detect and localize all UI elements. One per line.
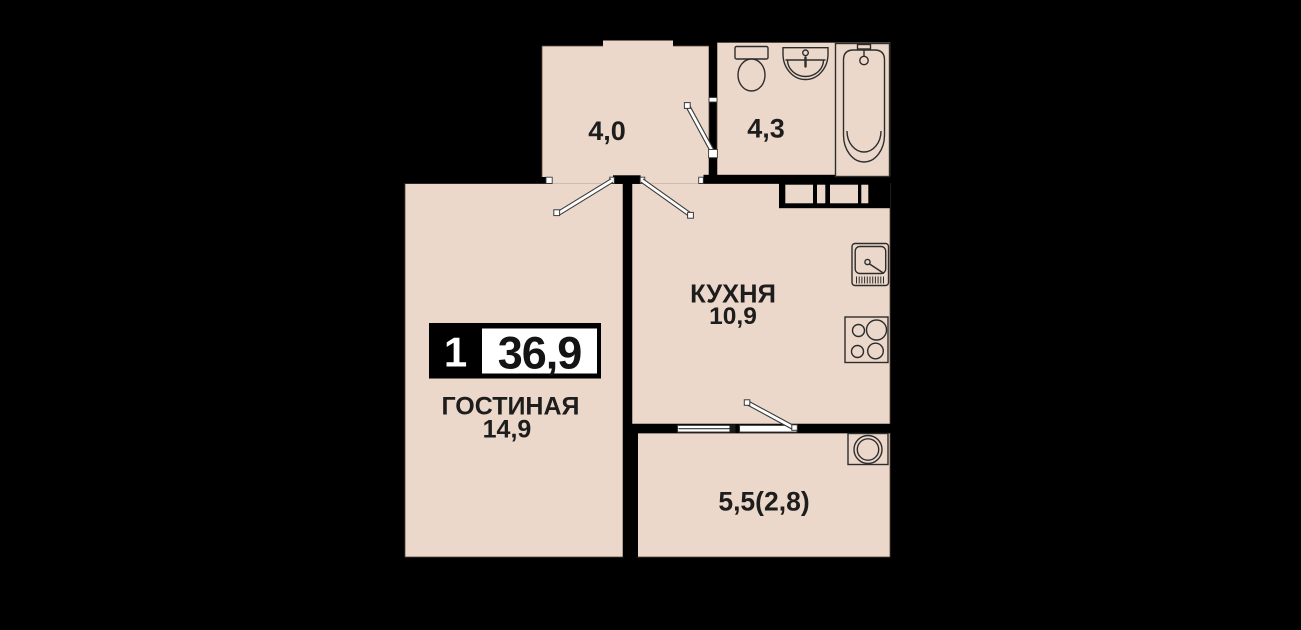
wall-bath-vertical-top — [709, 43, 717, 98]
door-tip-cap — [744, 400, 750, 406]
floorplan-svg: 1 36,9 4,0 4,3 КУХНЯ 10,9 ГОСТИНАЯ 14,9 … — [0, 0, 1301, 630]
door-hinge-cap — [792, 425, 798, 431]
jamb — [699, 177, 704, 183]
door-tip-cap — [688, 212, 694, 218]
window-mullion — [730, 424, 736, 433]
toilet-tank — [735, 47, 768, 60]
vent-duct-cell — [785, 185, 813, 204]
kitchen-sink-icon — [852, 244, 889, 286]
room-hallway-floor — [542, 46, 709, 178]
kitchen-area-label: 10,9 — [709, 303, 757, 330]
vent-duct-cell — [830, 185, 858, 204]
stove-icon — [845, 317, 888, 363]
jamb — [546, 177, 552, 183]
door-hinge-jamb — [709, 150, 718, 158]
jamb — [709, 98, 717, 103]
door-tip-cap — [684, 103, 690, 109]
opening-kitchen-door — [644, 177, 699, 184]
vent-duct-cell — [817, 185, 825, 204]
wall-living-balcony — [630, 424, 638, 557]
floorplan-canvas: 1 36,9 4,0 4,3 КУХНЯ 10,9 ГОСТИНАЯ 14,9 … — [0, 0, 1301, 630]
toilet-bowl — [738, 59, 765, 91]
badge-rooms-count: 1 — [444, 329, 467, 376]
balcony-area-label: 5,5(2,8) — [718, 487, 809, 517]
hallway-area-label: 4,0 — [588, 116, 626, 146]
area-badge: 1 36,9 — [429, 323, 601, 379]
bathtub-icon — [836, 44, 890, 177]
bathroom-area-label: 4,3 — [747, 114, 785, 144]
vent-duct-cell — [861, 185, 868, 204]
badge-total-area: 36,9 — [498, 328, 582, 379]
opening-living-door — [552, 177, 609, 184]
entrance-door-notch — [603, 41, 673, 49]
toilet-icon — [735, 47, 768, 92]
door-tip-cap — [554, 210, 560, 216]
wall-bath-vertical-bottom — [709, 158, 717, 178]
living-area-label: 14,9 — [483, 416, 532, 444]
